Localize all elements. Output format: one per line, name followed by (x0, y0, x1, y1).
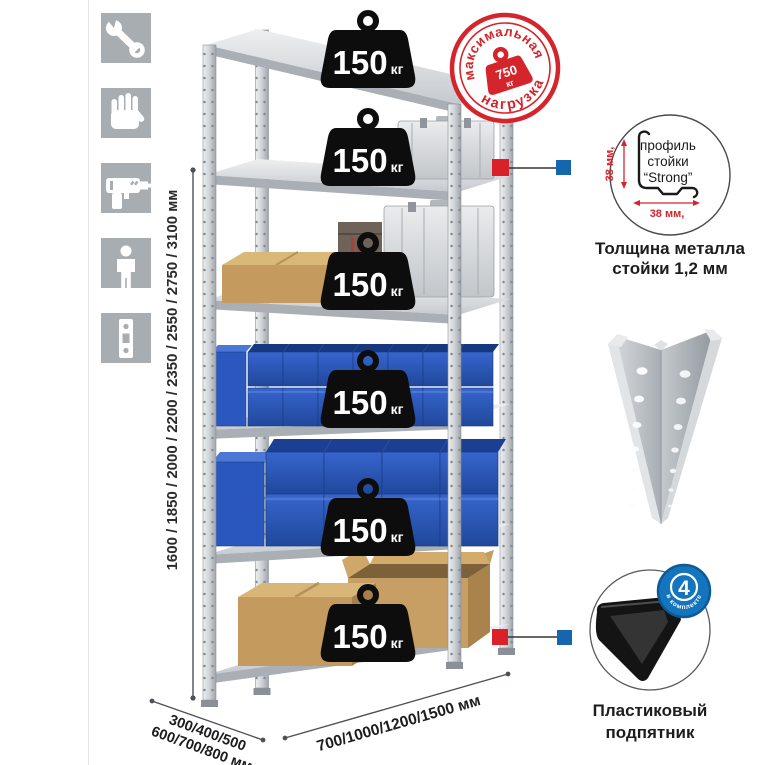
foot-caption-1: Пластиковый (593, 701, 708, 720)
width-dimension: 700/1000/1200/1500 мм (283, 672, 511, 756)
person-icon (101, 238, 151, 291)
sidebar (101, 13, 152, 363)
height-dimension: 1600 / 1850 / 2000 / 2200 / 2350 / 2550 … (164, 167, 196, 700)
connector-top-red-square (492, 159, 509, 176)
plastic-foot-detail: 4 в комплекте Пластиковый подпятник (590, 565, 710, 742)
profile-label-3: “Strong” (644, 170, 693, 185)
shelf-load-badge: 150кг (321, 13, 416, 88)
profile-dim-vertical: 38 мм, (604, 139, 627, 189)
svg-text:38 мм,: 38 мм, (604, 147, 616, 182)
main-illustration: 1600 / 1850 / 2000 / 2200 / 2350 / 2550 … (0, 0, 765, 765)
foot-caption-2: подпятник (606, 723, 695, 742)
profile-label-1: профиль (640, 138, 696, 153)
height-dimension-label: 1600 / 1850 / 2000 / 2200 / 2350 / 2550 … (164, 190, 181, 571)
connector-top (492, 159, 571, 176)
drill-icon (101, 163, 152, 213)
svg-text:38 мм,: 38 мм, (650, 208, 685, 220)
width-dimension-label: 700/1000/1200/1500 мм (315, 692, 483, 755)
profile-label-2: стойки (647, 154, 688, 169)
connector-bottom (492, 629, 572, 645)
included-count-badge: 4 в комплекте (658, 565, 710, 617)
connector-bottom-blue-square (557, 630, 572, 645)
corner-post-image (608, 329, 722, 524)
connector-top-blue-square (556, 160, 571, 175)
profile-detail: профиль стойки “Strong” 38 мм, 38 мм, То… (595, 115, 745, 278)
connector-bottom-red-square (492, 629, 508, 645)
depth-dimension: 300/400/500 600/700/800 мм (149, 699, 265, 765)
profile-caption-2: стойки 1,2 мм (612, 259, 728, 278)
profile-caption-1: Толщина металла (595, 239, 745, 258)
included-count: 4 (678, 577, 690, 600)
product-infographic: 1600 / 1850 / 2000 / 2200 / 2350 / 2550 … (0, 0, 765, 765)
wrench-icon (101, 13, 151, 63)
perforated-strip-icon (101, 313, 151, 363)
gloves-icon (101, 88, 151, 138)
